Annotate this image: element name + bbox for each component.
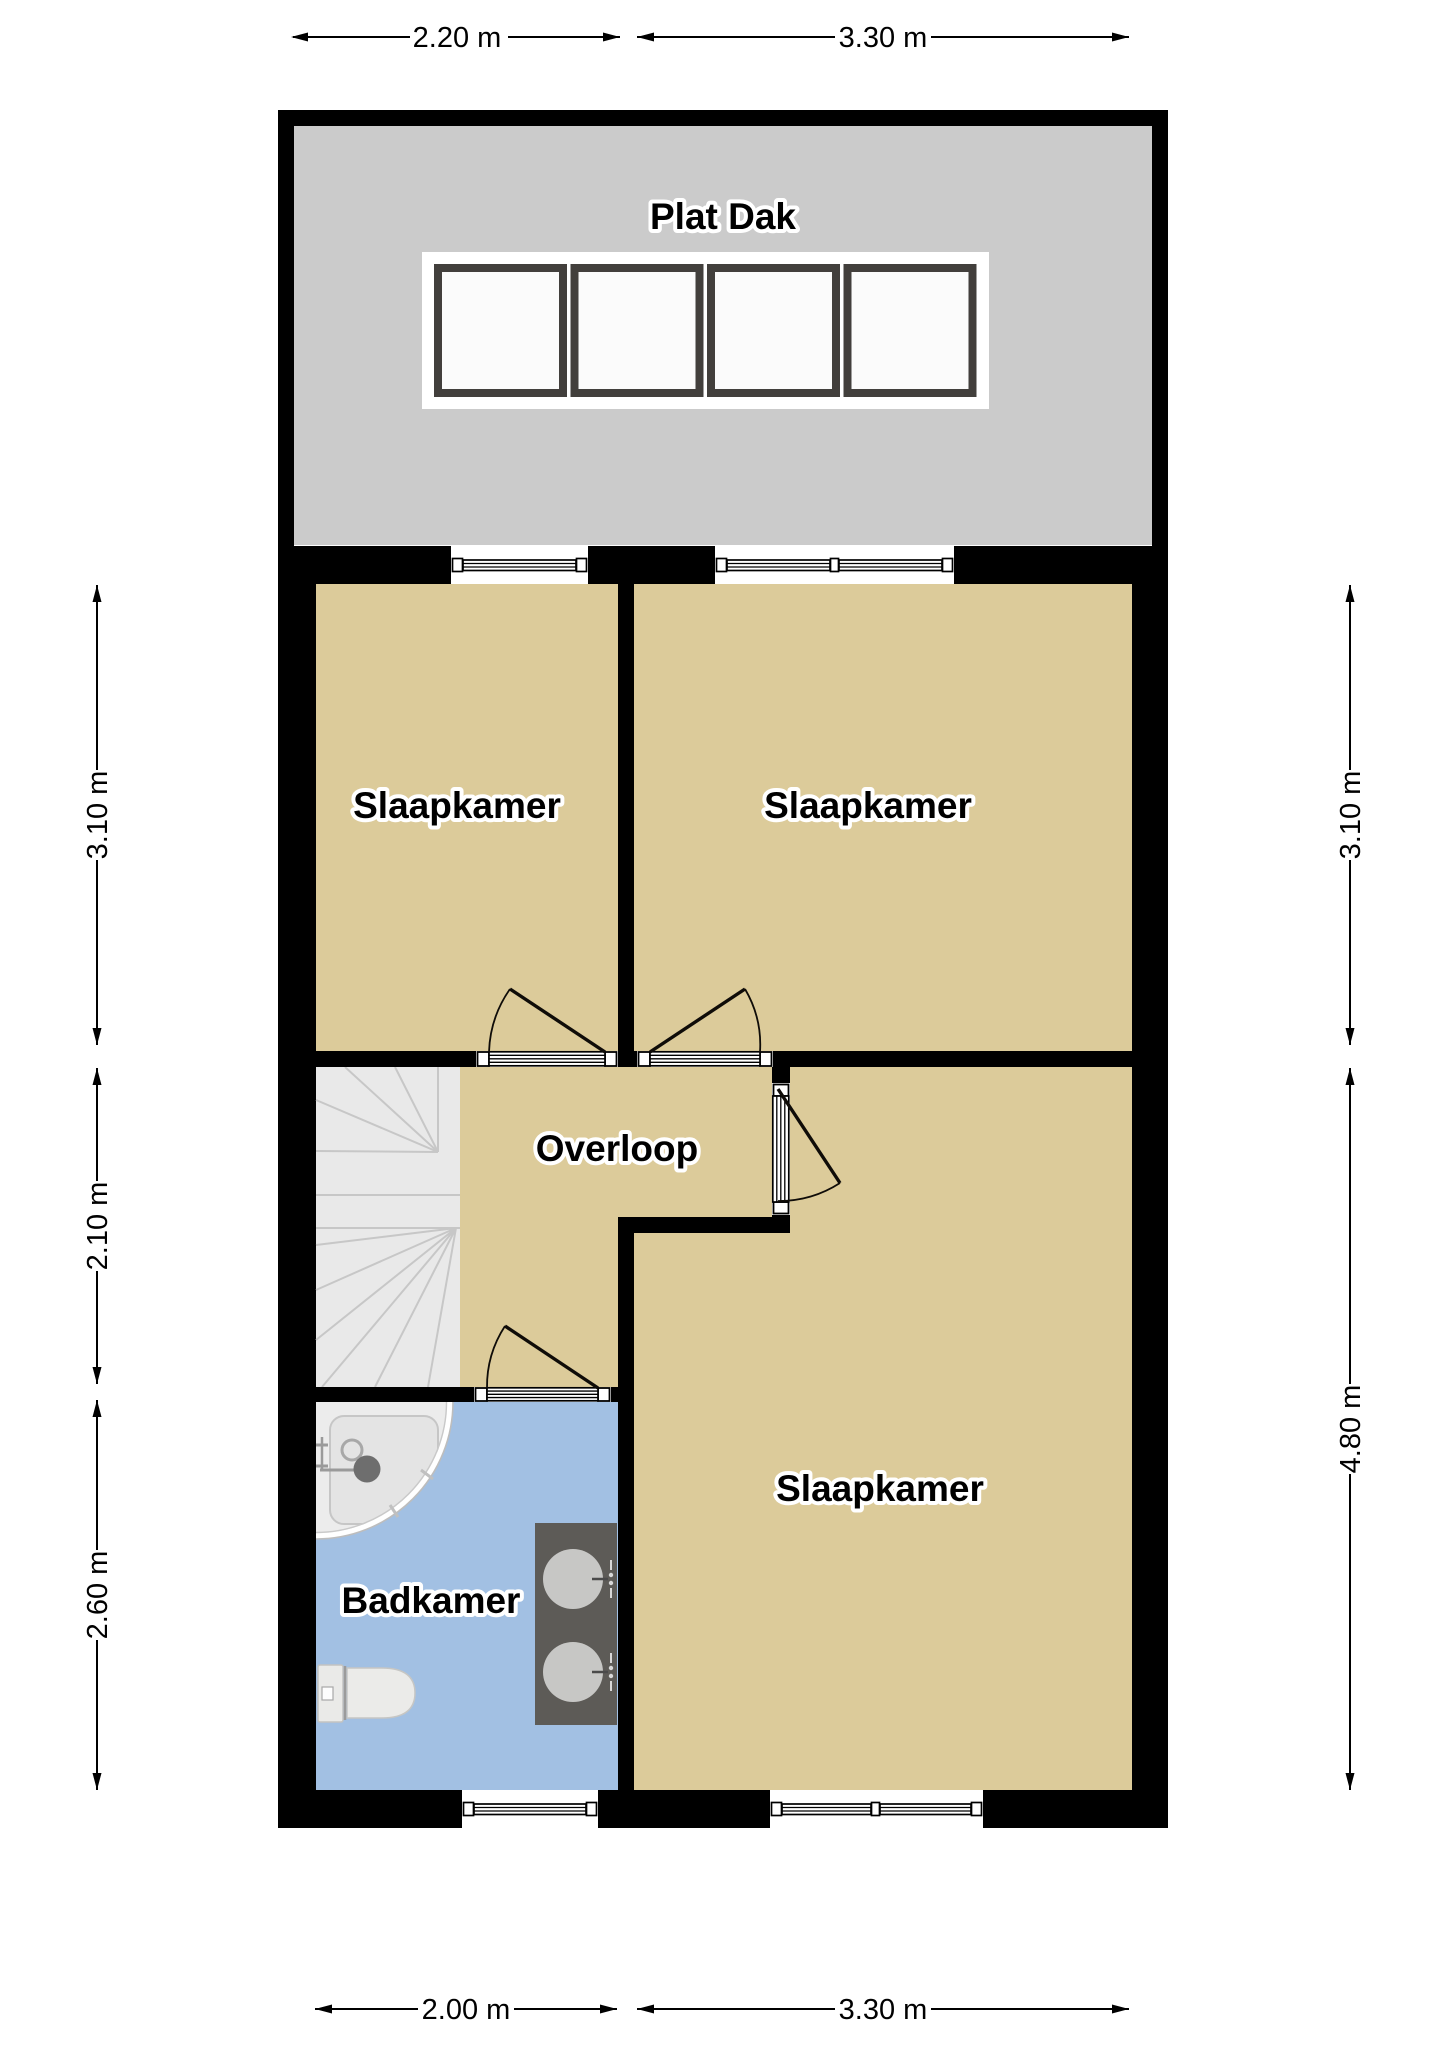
svg-text:2.60 m: 2.60 m bbox=[82, 1551, 114, 1640]
svg-text:3.10 m: 3.10 m bbox=[82, 771, 114, 860]
svg-text:2.10 m: 2.10 m bbox=[82, 1182, 114, 1271]
svg-text:3.10 m: 3.10 m bbox=[1335, 771, 1367, 860]
svg-text:Slaapkamer: Slaapkamer bbox=[764, 785, 972, 826]
svg-text:Overloop: Overloop bbox=[536, 1128, 698, 1169]
svg-text:3.30 m: 3.30 m bbox=[839, 1994, 928, 2026]
svg-text:3.30 m: 3.30 m bbox=[839, 22, 928, 54]
svg-text:Slaapkamer: Slaapkamer bbox=[776, 1468, 984, 1509]
svg-text:2.20 m: 2.20 m bbox=[413, 22, 502, 54]
svg-text:2.00 m: 2.00 m bbox=[422, 1994, 511, 2026]
svg-text:Slaapkamer: Slaapkamer bbox=[353, 785, 561, 826]
svg-text:Badkamer: Badkamer bbox=[342, 1580, 521, 1621]
svg-text:4.80 m: 4.80 m bbox=[1335, 1385, 1367, 1474]
svg-text:Plat Dak: Plat Dak bbox=[650, 196, 796, 237]
